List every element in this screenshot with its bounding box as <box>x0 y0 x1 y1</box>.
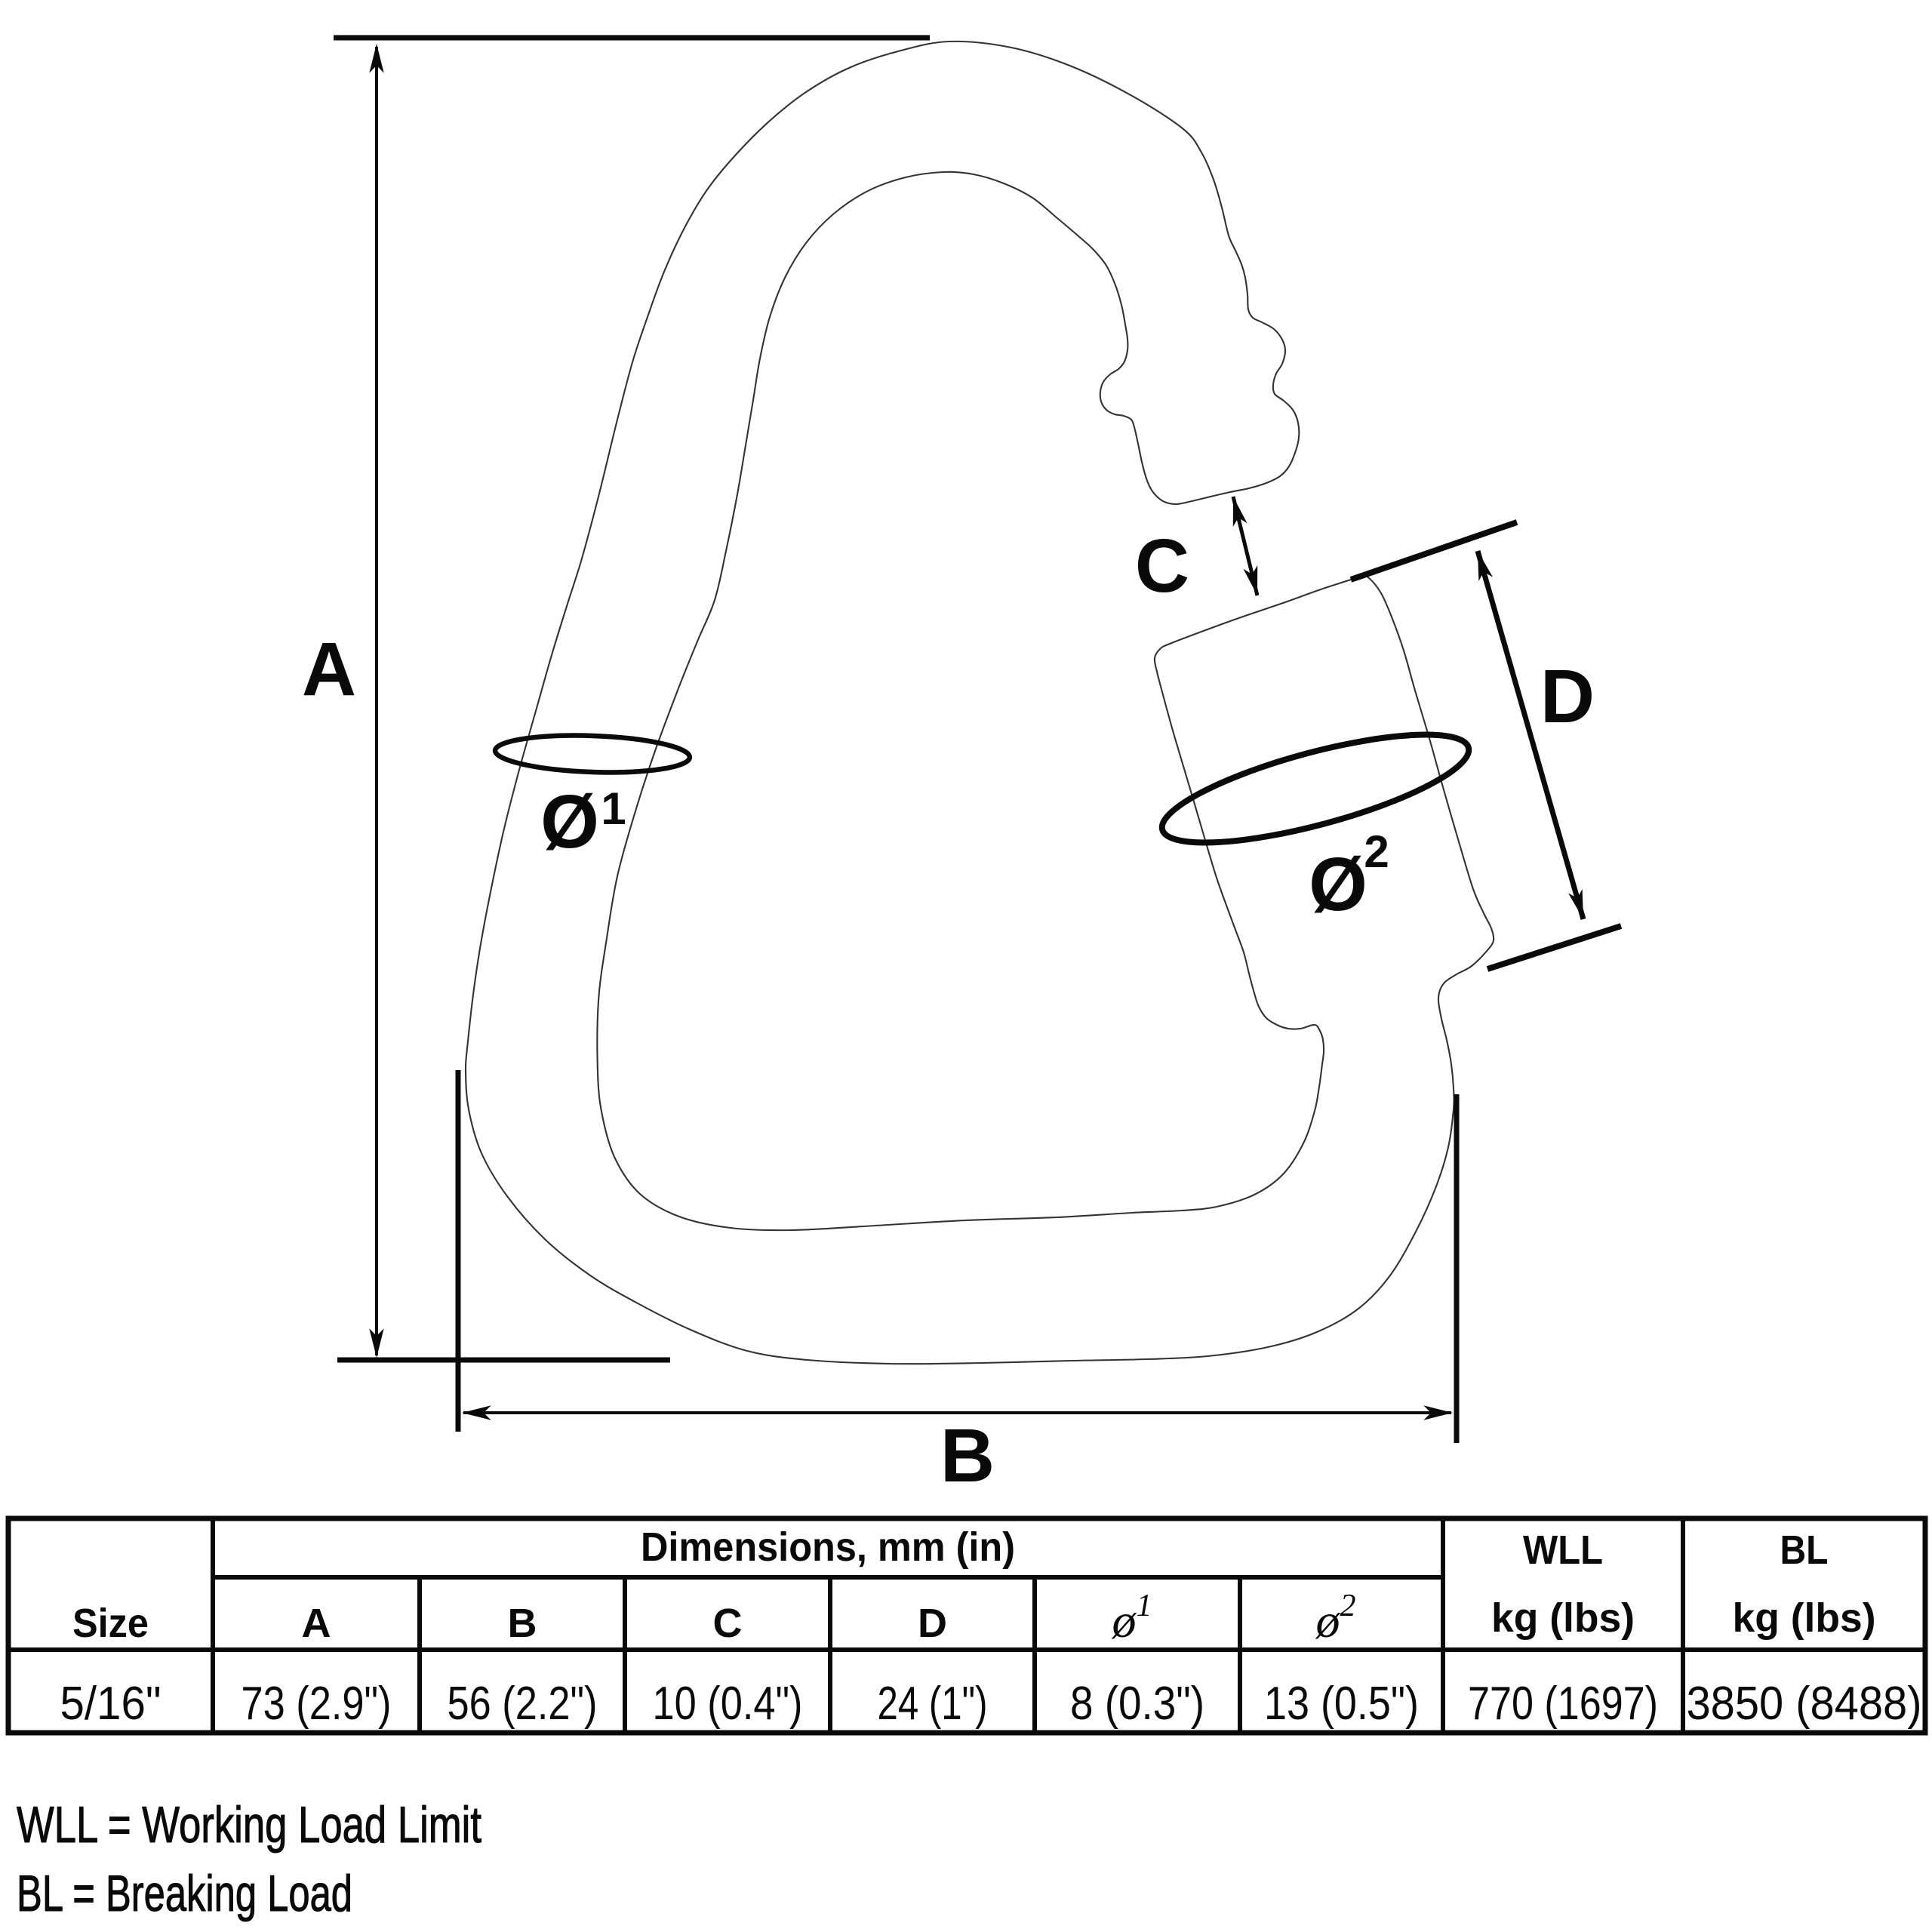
svg-text:WLL = Working Load Limit: WLL = Working Load Limit <box>17 1796 481 1854</box>
svg-text:8 (0.3"): 8 (0.3") <box>1070 1678 1204 1730</box>
svg-text:Dimensions, mm (in): Dimensions, mm (in) <box>641 1524 1015 1570</box>
svg-text:770 (1697): 770 (1697) <box>1468 1678 1658 1730</box>
svg-text:24 (1"): 24 (1") <box>878 1678 988 1730</box>
svg-text:Ø: Ø <box>540 780 599 864</box>
svg-text:13 (0.5"): 13 (0.5") <box>1264 1678 1419 1730</box>
svg-text:B: B <box>940 1414 995 1498</box>
svg-text:C: C <box>713 1601 743 1646</box>
svg-text:2: 2 <box>1364 826 1389 877</box>
svg-text:kg (lbs): kg (lbs) <box>1733 1595 1876 1641</box>
svg-text:Size: Size <box>72 1601 149 1646</box>
svg-text:D: D <box>1540 654 1595 739</box>
svg-text:kg (lbs): kg (lbs) <box>1491 1595 1635 1641</box>
svg-text:5/16": 5/16" <box>60 1678 162 1730</box>
svg-text:C: C <box>1135 524 1189 608</box>
svg-text:WLL: WLL <box>1523 1527 1603 1573</box>
svg-text:D: D <box>918 1601 947 1646</box>
svg-text:73 (2.9"): 73 (2.9") <box>241 1678 392 1730</box>
svg-text:Ø: Ø <box>1309 842 1367 927</box>
svg-text:A: A <box>302 1601 331 1646</box>
svg-text:10 (0.4"): 10 (0.4") <box>653 1678 803 1730</box>
svg-text:BL = Breaking Load: BL = Breaking Load <box>17 1865 352 1922</box>
svg-text:B: B <box>508 1601 537 1646</box>
svg-text:3850 (8488): 3850 (8488) <box>1687 1678 1922 1730</box>
svg-text:BL: BL <box>1780 1527 1829 1573</box>
svg-text:56 (2.2"): 56 (2.2") <box>448 1678 598 1730</box>
svg-text:A: A <box>302 627 356 712</box>
svg-text:1: 1 <box>601 783 626 834</box>
